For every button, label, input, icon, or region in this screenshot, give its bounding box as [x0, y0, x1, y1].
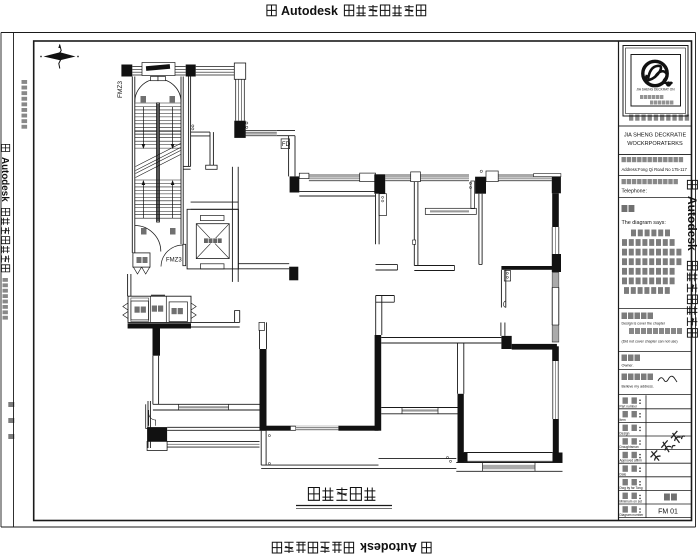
- svg-text:WOCKRPORATERKS: WOCKRPORATERKS: [627, 141, 683, 147]
- svg-text:Minimum on set: Minimum on set: [620, 500, 643, 504]
- svg-text:Design: Design: [620, 432, 630, 436]
- svg-text:Date: Date: [620, 472, 627, 476]
- svg-text:JIA SHENG DECKRAT ON: JIA SHENG DECKRAT ON: [636, 88, 675, 92]
- svg-text:Part number: Part number: [620, 404, 638, 408]
- svg-text:Owner.: Owner.: [622, 364, 634, 368]
- svg-text:Believe my address.: Believe my address.: [622, 385, 654, 389]
- svg-text:Design is cover the chapter: Design is cover the chapter: [622, 322, 666, 326]
- svg-text:FMZ3: FMZ3: [117, 81, 124, 98]
- svg-text:Diagram number: Diagram number: [620, 513, 645, 517]
- svg-text:Item: Item: [620, 418, 627, 422]
- svg-text:Autodesk: Autodesk: [685, 196, 699, 251]
- svg-text:Autodesk: Autodesk: [0, 157, 10, 202]
- svg-text:Autodesk: Autodesk: [281, 4, 338, 18]
- svg-text:FMZ3: FMZ3: [166, 258, 182, 264]
- svg-text:The diagram says:: The diagram says:: [622, 220, 666, 226]
- svg-text:Telephone:: Telephone:: [622, 189, 647, 195]
- svg-text:Autodesk: Autodesk: [360, 540, 417, 554]
- svg-text:Draughtsman: Draughtsman: [620, 445, 639, 449]
- svg-text:FD: FD: [282, 142, 291, 148]
- svg-text:(Did not cover chapter can not: (Did not cover chapter can not use): [622, 340, 678, 344]
- svg-text:Dwg by far Tang: Dwg by far Tang: [620, 486, 643, 490]
- svg-text:JIA SHENG DECKRATIE: JIA SHENG DECKRATIE: [624, 133, 687, 139]
- svg-text:FM 01: FM 01: [658, 509, 678, 516]
- svg-text:Approved affirm: Approved affirm: [620, 459, 643, 463]
- svg-text:Address:Fong Qi Road No 175-11: Address:Fong Qi Road No 175-117: [622, 167, 688, 172]
